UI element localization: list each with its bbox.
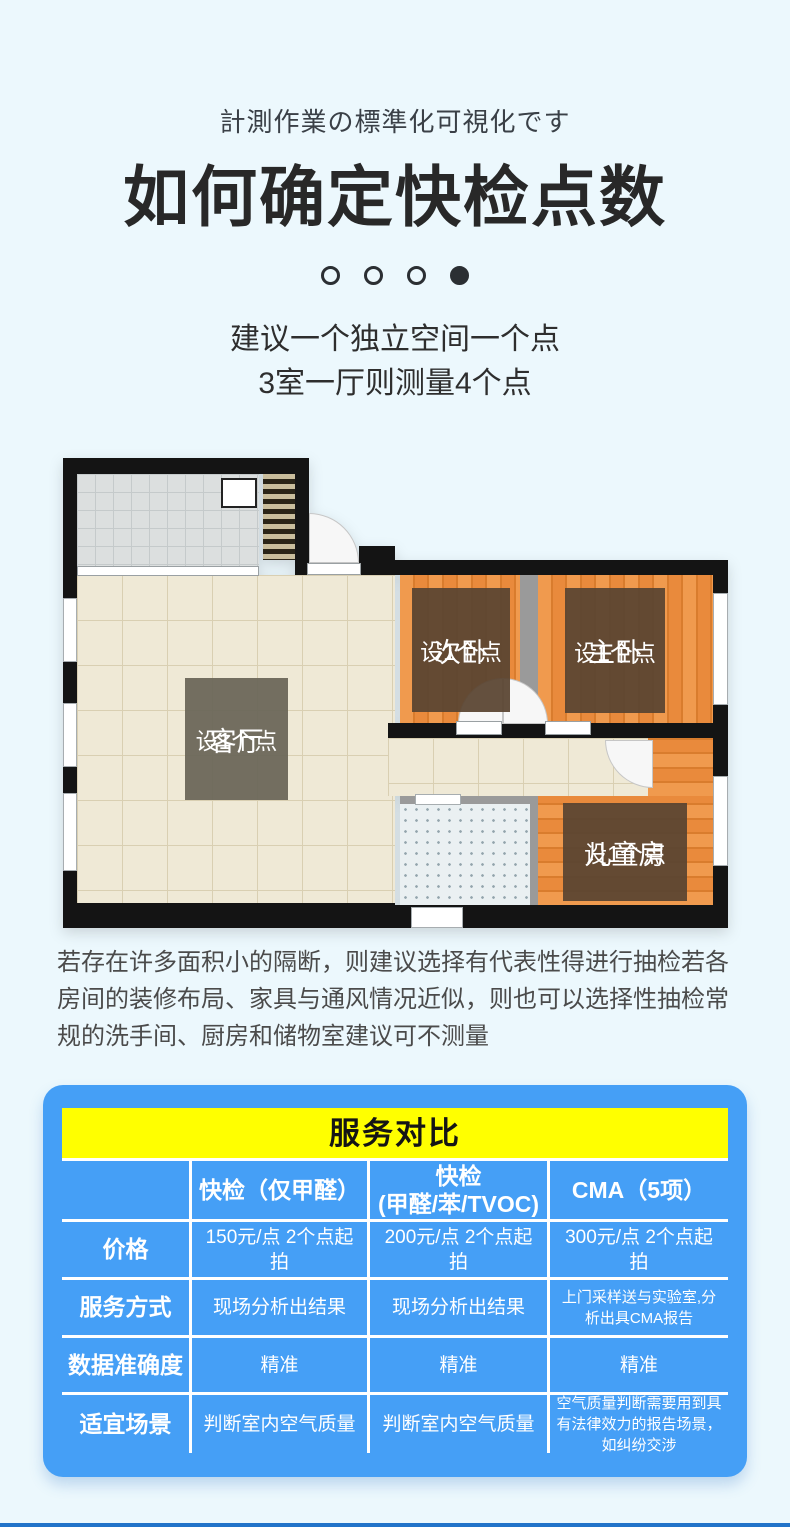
carousel-dot-active[interactable] — [450, 266, 469, 285]
wall-top — [63, 458, 309, 474]
advice-line-2: 3室一厅则测量4个点 — [0, 362, 790, 406]
entry-door-arc — [309, 513, 359, 563]
table-cell: 现场分析出结果 — [370, 1280, 547, 1335]
window-bathroom — [415, 794, 461, 805]
comparison-card: 服务对比 快检（仅甲醛） 快检 (甲醛/苯/TVOC) CMA（5项） 价格 1… — [43, 1085, 747, 1477]
table-cell: 判断室内空气质量 — [192, 1395, 367, 1453]
row-label-scenario: 适宜场景 — [62, 1395, 189, 1453]
kids-door-floor — [648, 738, 713, 796]
table-cell: 上门采样送与实验室,分析出具CMA报告 — [550, 1280, 728, 1335]
column-header-quick-tvoc: 快检 (甲醛/苯/TVOC) — [370, 1161, 547, 1219]
table-cell: 200元/点 2个点起拍 — [370, 1222, 547, 1277]
window-left-1 — [63, 598, 77, 662]
carousel-dot[interactable] — [364, 266, 383, 285]
comparison-table: 服务对比 快检（仅甲醛） 快检 (甲醛/苯/TVOC) CMA（5项） 价格 1… — [62, 1108, 728, 1453]
table-title: 服务对比 — [62, 1108, 728, 1158]
row-label-service: 服务方式 — [62, 1280, 189, 1335]
advice-text: 建议一个独立空间一个点 3室一厅则测量4个点 — [0, 318, 790, 406]
table-cell: 精准 — [550, 1338, 728, 1392]
table-cell: 150元/点 2个点起拍 — [192, 1222, 367, 1277]
carousel-dots — [0, 266, 790, 285]
wall-entry-pillar — [295, 474, 309, 575]
second-bedroom-label: 次卧 设1个点 — [412, 588, 510, 712]
window-bottom — [411, 907, 463, 928]
bathroom-floor — [400, 804, 538, 905]
room-point-note: 设1个点 — [420, 633, 502, 667]
note-paragraph: 若存在许多面积小的隔断，则建议选择有代表性得进行抽检若各房间的装修布局、家具与通… — [57, 944, 739, 1055]
room-point-note: 设1个点 — [196, 722, 278, 756]
living-room-label: 客厅 设1个点 — [185, 678, 288, 800]
column-header-cma: CMA（5项） — [550, 1161, 728, 1219]
table-cell: 空气质量判断需要用到具有法律效力的报告场景，如纠纷交涉 — [550, 1395, 728, 1453]
window-right-1 — [713, 593, 728, 705]
window-right-2 — [713, 776, 728, 866]
advice-line-1: 建议一个独立空间一个点 — [0, 318, 790, 362]
room-point-note: 设1个点 — [574, 634, 656, 668]
master-bedroom-label: 主卧 设1个点 — [565, 588, 665, 713]
wall-bedrooms-top — [388, 560, 728, 575]
table-cell: 精准 — [370, 1338, 547, 1392]
bedroom-door-sill-1 — [456, 721, 502, 735]
table-cell: 精准 — [192, 1338, 367, 1392]
entry-cabinet — [263, 474, 295, 560]
row-label-price: 价格 — [62, 1222, 189, 1277]
table-cell: 现场分析出结果 — [192, 1280, 367, 1335]
window-left-3 — [63, 793, 77, 871]
page-title: 如何确定快检点数 — [0, 144, 790, 240]
table-cell: 300元/点 2个点起拍 — [550, 1222, 728, 1277]
bottom-divider — [0, 1523, 790, 1527]
carousel-dot[interactable] — [407, 266, 426, 285]
table-corner-cell — [62, 1161, 189, 1219]
balcony-fixture — [221, 478, 257, 508]
partition-bath-kids — [530, 796, 538, 905]
table-cell: 判断室内空气质量 — [370, 1395, 547, 1453]
balcony-sill — [77, 566, 259, 576]
row-label-accuracy: 数据准确度 — [62, 1338, 189, 1392]
wall-bottom-left — [63, 903, 395, 928]
floor-plan: 客厅 设1个点 次卧 设1个点 主卧 设1个点 儿童房 设1个点 — [63, 458, 728, 933]
entry-door-sill — [307, 563, 361, 575]
subtitle-japanese: 計測作業の標準化可視化です — [0, 102, 790, 139]
kids-room-label: 儿童房 设1个点 — [563, 803, 687, 901]
bedroom-door-sill-2 — [545, 721, 591, 735]
column-header-quick-hcho: 快检（仅甲醛） — [192, 1161, 367, 1219]
window-left-2 — [63, 703, 77, 767]
carousel-dot[interactable] — [321, 266, 340, 285]
page: 計測作業の標準化可視化です 如何确定快检点数 建议一个独立空间一个点 3室一厅则… — [0, 0, 790, 1527]
room-point-note: 设1个点 — [584, 835, 666, 869]
